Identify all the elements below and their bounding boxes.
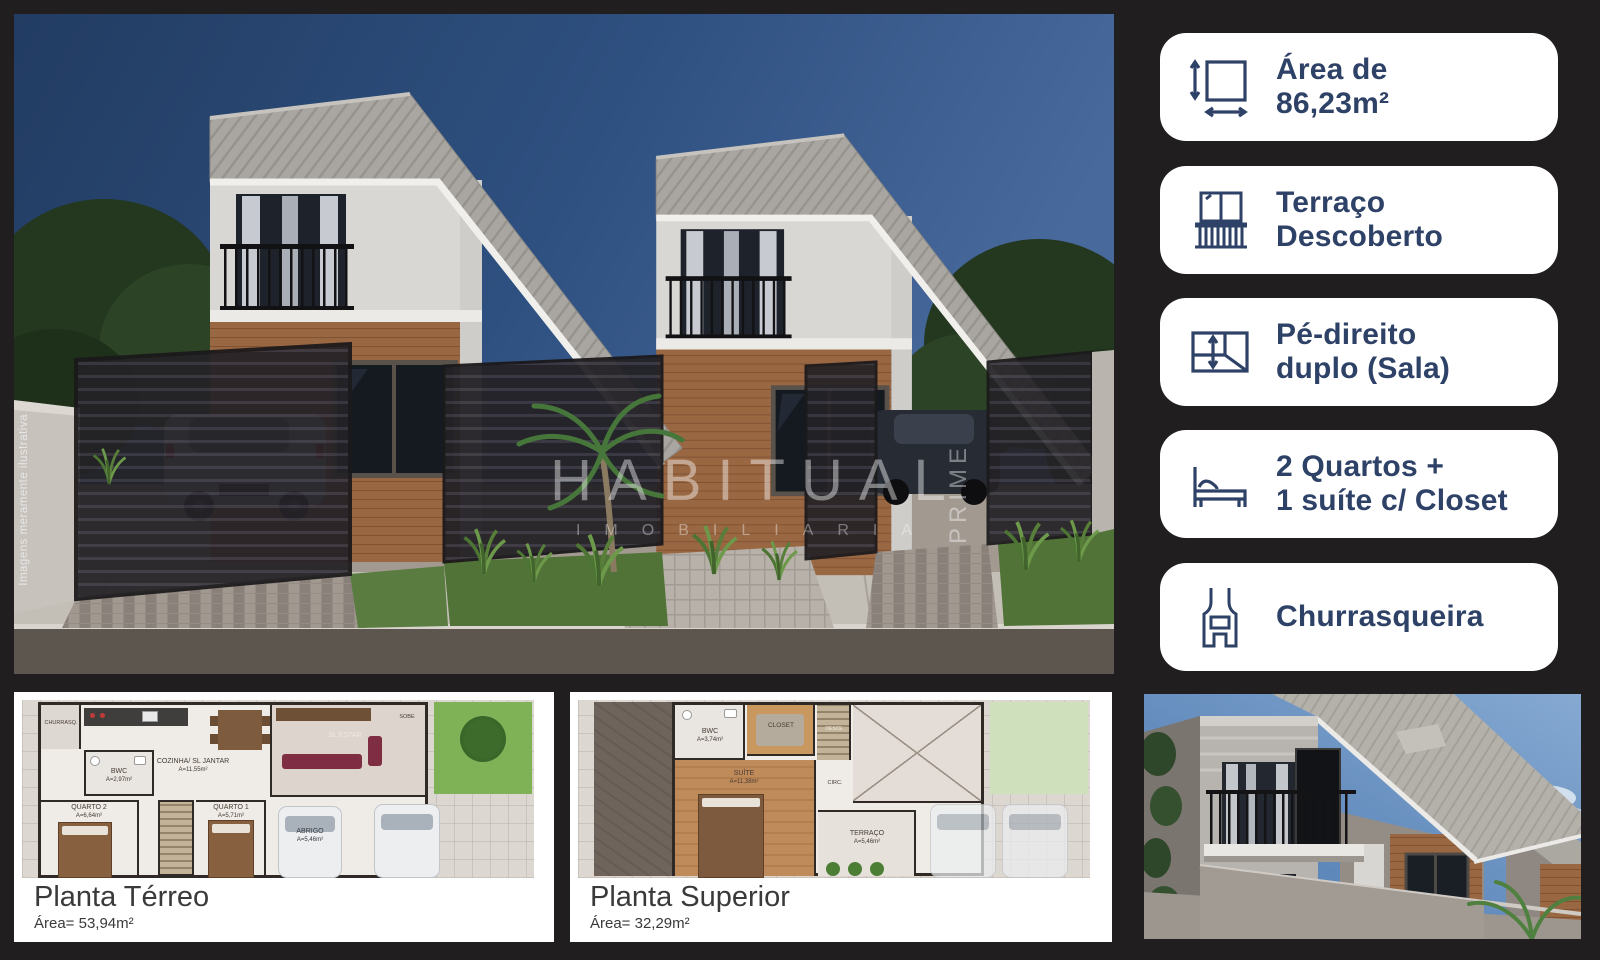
watermark-prime: PRIME xyxy=(945,443,972,544)
feature-card-terrace: Terraço Descoberto xyxy=(1160,166,1558,274)
feature-card-barbecue: Churrasqueira xyxy=(1160,563,1558,671)
car-driveway xyxy=(1002,804,1068,878)
watermark-brand: HABITUAL xyxy=(550,448,962,513)
watermark-sub: IMOBILIARIA xyxy=(576,522,936,539)
main-exterior-render: HABITUAL IMOBILIARIA PRIME Imagens meram… xyxy=(14,14,1114,674)
sofa xyxy=(282,754,362,769)
feature-card-area: Área de 86,23m² xyxy=(1160,33,1558,141)
balcony-icon xyxy=(1186,186,1254,254)
mini-scene xyxy=(1144,694,1581,939)
bed xyxy=(698,794,764,878)
car-driveway xyxy=(374,804,440,878)
feature-card-text: 2 Quartos + 1 suíte c/ Closet xyxy=(1276,450,1508,518)
feature-card-text: Terraço Descoberto xyxy=(1276,186,1443,254)
stairs xyxy=(158,800,194,876)
bed-icon xyxy=(1186,450,1254,518)
ceiling-height-icon xyxy=(1186,318,1254,386)
stairs xyxy=(817,705,851,760)
floor-plan-superior-image: BWCA=3,74m² CLOSET DESCE SUÍTEA=11,38m² … xyxy=(578,700,1090,878)
bed xyxy=(208,820,254,878)
plan-area: Área= 32,29m² xyxy=(590,915,790,932)
feature-card-text: Área de 86,23m² xyxy=(1276,53,1389,121)
floor-plan-card-superior: BWCA=3,74m² CLOSET DESCE SUÍTEA=11,38m² … xyxy=(570,692,1112,942)
plan-caption: Planta Superior Área= 32,29m² xyxy=(590,882,790,932)
plan-title: Planta Térreo xyxy=(34,882,209,912)
fence-right-b xyxy=(988,352,1092,544)
plan-area: Área= 53,94m² xyxy=(34,915,209,932)
feature-card-ceiling: Pé-direito duplo (Sala) xyxy=(1160,298,1558,406)
area-dimensions-icon xyxy=(1186,53,1254,121)
bed xyxy=(58,822,112,878)
floor-plan-card-terreo: CHURRASQ. COZINHA/ SL JANTARA=11,55m² SL… xyxy=(14,692,554,942)
gate-left xyxy=(76,344,350,599)
secondary-exterior-render xyxy=(1144,694,1581,939)
barbecue-icon xyxy=(1186,583,1254,651)
dining-table xyxy=(218,710,262,750)
image-disclaimer: Imagens meramente ilustrativa xyxy=(18,414,30,586)
watermark: HABITUAL IMOBILIARIA PRIME xyxy=(550,443,972,544)
plan-caption: Planta Térreo Área= 53,94m² xyxy=(34,882,209,932)
roof-strip xyxy=(594,702,672,876)
double-height-void xyxy=(853,705,981,803)
car-driveway xyxy=(930,804,996,878)
floor-plan-terreo-image: CHURRASQ. COZINHA/ SL JANTARA=11,55m² SL… xyxy=(22,700,534,878)
feature-card-text: Churrasqueira xyxy=(1276,600,1484,634)
tree-top xyxy=(460,716,506,762)
exterior-scene: HABITUAL IMOBILIARIA PRIME xyxy=(14,14,1114,674)
lawn-area-faded xyxy=(990,702,1088,794)
real-estate-flyer: HABITUAL IMOBILIARIA PRIME Imagens meram… xyxy=(0,0,1600,960)
feature-card-text: Pé-direito duplo (Sala) xyxy=(1276,318,1450,386)
plan-title: Planta Superior xyxy=(590,882,790,912)
feature-card-bedrooms: 2 Quartos + 1 suíte c/ Closet xyxy=(1160,430,1558,538)
